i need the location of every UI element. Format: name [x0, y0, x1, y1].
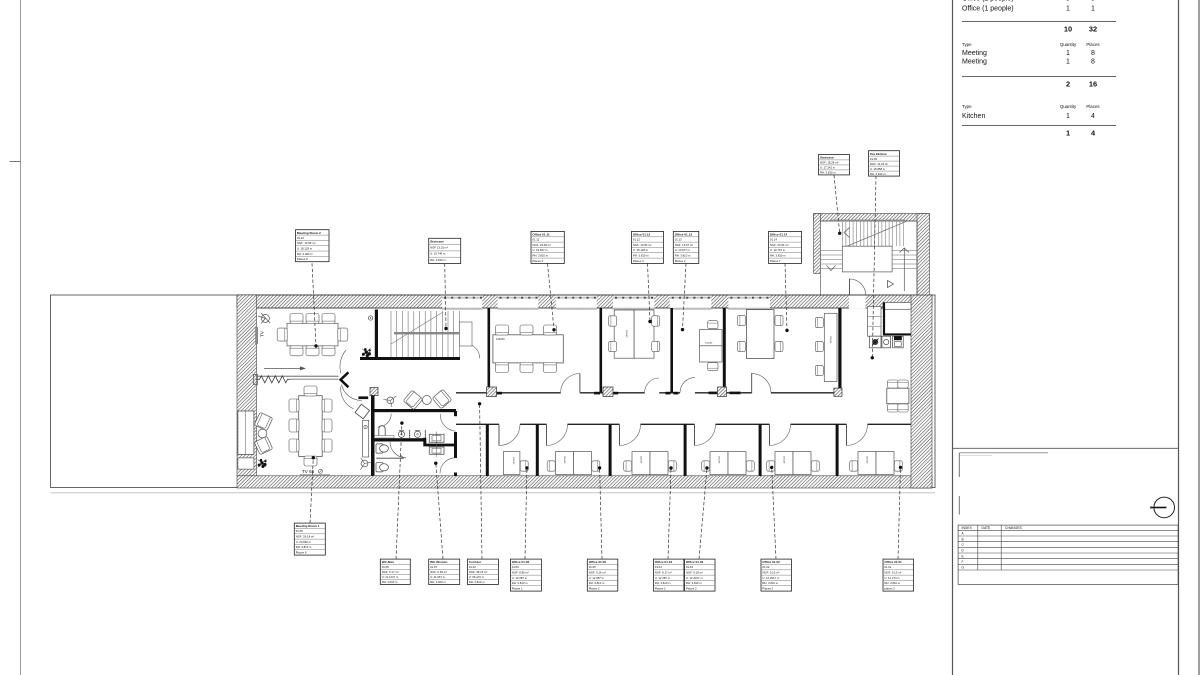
svg-text:1: 1	[1091, 6, 1095, 13]
svg-text:Type: Type	[962, 42, 972, 47]
svg-text:NGF: 13.67 m²: NGF: 13.67 m²	[675, 243, 694, 247]
svg-text:RH: 3.810 m: RH: 3.810 m	[884, 581, 900, 585]
svg-text:Places 7: Places 7	[770, 259, 781, 263]
svg-text:Office 01.05: Office 01.05	[589, 560, 607, 564]
svg-text:Places 2: Places 2	[762, 586, 773, 590]
svg-text:01.05: 01.05	[589, 565, 596, 569]
svg-text:Office (1 people): Office (1 people)	[962, 6, 1014, 13]
svg-text:Kitchen: Kitchen	[962, 113, 985, 120]
svg-text:WC-Women: WC-Women	[430, 560, 447, 564]
svg-text:9: 9	[1066, 0, 1070, 3]
svg-text:B: B	[962, 537, 964, 541]
svg-text:Meeting Room 1: Meeting Room 1	[296, 524, 320, 528]
svg-text:U: 12.2017 m: U: 12.2017 m	[686, 576, 703, 580]
svg-text:8: 8	[1091, 50, 1095, 57]
svg-text:RH: 3.810 m: RH: 3.810 m	[655, 581, 671, 585]
svg-text:Office 01.02: Office 01.02	[762, 560, 780, 564]
svg-text:Type: Type	[962, 104, 972, 109]
svg-text:01.06: 01.06	[512, 565, 519, 569]
svg-text:NGF: 13.80 m²: NGF: 13.80 m²	[633, 243, 652, 247]
svg-text:U: 19.537 m: U: 19.537 m	[532, 248, 548, 252]
svg-text:WC-Men: WC-Men	[382, 560, 394, 564]
svg-text:RH: 3.810 m: RH: 3.810 m	[633, 253, 649, 257]
svg-text:8: 8	[1091, 59, 1095, 66]
svg-text:1: 1	[1066, 113, 1070, 120]
svg-text:9: 9	[1091, 0, 1095, 3]
svg-text:Quantity: Quantity	[1060, 104, 1077, 109]
svg-text:E: E	[962, 554, 964, 558]
svg-text:Corridor: Corridor	[469, 560, 482, 564]
svg-text:01.10: 01.10	[297, 236, 304, 240]
svg-text:U: 13.977 m: U: 13.977 m	[675, 248, 691, 252]
svg-text:1: 1	[1066, 129, 1070, 138]
svg-text:RH: 3.810 m: RH: 3.810 m	[762, 581, 778, 585]
svg-text:01.14: 01.14	[770, 238, 777, 242]
svg-text:NGF 13.15 m²: NGF 13.15 m²	[430, 245, 448, 249]
svg-text:Places 2: Places 2	[675, 259, 686, 263]
svg-text:160x80: 160x80	[563, 456, 565, 464]
svg-text:NGF: 6.60 m²: NGF: 6.60 m²	[430, 570, 447, 574]
svg-text:NGF: 11.23 m²: NGF: 11.23 m²	[870, 162, 888, 166]
svg-text:10: 10	[1064, 25, 1072, 34]
svg-text:U: 12.2917 m: U: 12.2917 m	[762, 576, 779, 580]
svg-text:1: 1	[1066, 50, 1070, 57]
svg-text:NGF: 9.13 m²: NGF: 9.13 m²	[884, 571, 901, 575]
svg-text:160x80: 160x80	[512, 457, 514, 465]
svg-text:160x80: 160x80	[625, 330, 627, 338]
svg-text:140x60: 140x60	[496, 337, 505, 341]
svg-text:1: 1	[1066, 6, 1070, 13]
svg-text:U: 12.087 m: U: 12.087 m	[512, 576, 528, 580]
svg-text:U: 12.274 m: U: 12.274 m	[884, 576, 900, 580]
svg-text:U: 19.797 m: U: 19.797 m	[770, 248, 786, 252]
svg-text:F: F	[962, 560, 964, 564]
svg-text:01.12: 01.12	[633, 238, 640, 242]
svg-text:NGF: 19.08 m²: NGF: 19.08 m²	[297, 241, 316, 245]
svg-text:1: 1	[1066, 59, 1070, 66]
svg-text:Places 2: Places 2	[655, 586, 666, 590]
svg-text:RH: 3.810 m: RH: 3.810 m	[686, 581, 702, 585]
svg-text:U: 66.472 m: U: 66.472 m	[469, 575, 485, 579]
svg-text:NGF: 18.26 m²: NGF: 18.26 m²	[820, 161, 839, 165]
svg-text:RH: 3.810 m: RH: 3.810 m	[870, 172, 886, 176]
svg-text:RH: 3.810 m: RH: 3.810 m	[675, 253, 691, 257]
svg-text:NGF: 48.15 m²: NGF: 48.15 m²	[469, 570, 488, 574]
svg-text:Meeting: Meeting	[962, 59, 987, 66]
svg-text:Office 01.03: Office 01.03	[686, 560, 704, 564]
svg-text:NGF: 5.17 m²: NGF: 5.17 m²	[382, 570, 399, 574]
svg-text:RH: 3.810 m: RH: 3.810 m	[770, 253, 786, 257]
svg-text:NGF: 23.09 m²: NGF: 23.09 m²	[532, 243, 551, 247]
svg-text:RH: 3.810 m: RH: 3.810 m	[589, 581, 605, 585]
svg-text:2: 2	[1066, 80, 1070, 89]
svg-text:Office 01.13: Office 01.13	[675, 233, 693, 237]
svg-text:Places 1: Places 1	[512, 586, 523, 590]
svg-text:U: 18.129 m: U: 18.129 m	[297, 246, 313, 250]
svg-text:U: 11.1247 m: U: 11.1247 m	[382, 575, 399, 579]
svg-text:01.20: 01.20	[469, 565, 476, 569]
svg-text:32: 32	[1089, 25, 1097, 34]
svg-text:NGF: 9.18 m²: NGF: 9.18 m²	[686, 571, 703, 575]
svg-text:160x80: 160x80	[783, 456, 785, 464]
svg-text:RH: 3.000 m: RH: 3.000 m	[382, 580, 398, 584]
svg-text:Places 2: Places 2	[686, 586, 697, 590]
svg-text:01.01: 01.01	[884, 565, 891, 569]
svg-text:Places 4: Places 4	[633, 259, 644, 263]
svg-text:Office 01.06: Office 01.06	[512, 560, 530, 564]
svg-text:Office 01.04: Office 01.04	[655, 560, 673, 564]
svg-text:places 2: places 2	[884, 586, 895, 590]
svg-text:U: 16.858 m: U: 16.858 m	[870, 167, 886, 171]
svg-text:01.09: 01.09	[870, 157, 877, 161]
svg-text:01.04: 01.04	[655, 565, 662, 569]
svg-text:CHANGES: CHANGES	[1005, 526, 1023, 530]
svg-text:U: 20.962 m: U: 20.962 m	[296, 540, 312, 544]
svg-text:Quantity: Quantity	[1060, 42, 1077, 47]
svg-text:NGF: 26.18 m²: NGF: 26.18 m²	[296, 535, 315, 539]
svg-text:Office 01.11: Office 01.11	[532, 233, 549, 237]
svg-text:NGF: 9.17 m²: NGF: 9.17 m²	[655, 571, 672, 575]
svg-text:Places 2: Places 2	[589, 586, 600, 590]
svg-text:NGF: 9.16 m²: NGF: 9.16 m²	[589, 571, 606, 575]
svg-text:U: 12.287 m: U: 12.287 m	[655, 576, 671, 580]
svg-text:RH: 3.810 m: RH: 3.810 m	[532, 253, 548, 257]
svg-text:Places 4: Places 4	[532, 259, 543, 263]
svg-text:Meeting: Meeting	[962, 50, 987, 57]
svg-text:Places: Places	[1086, 42, 1100, 47]
svg-text:NGF: 9.15 m²: NGF: 9.15 m²	[762, 571, 779, 575]
svg-text:RH: 3.000 m: RH: 3.000 m	[430, 580, 446, 584]
svg-text:01.03: 01.03	[686, 565, 693, 569]
svg-text:U: 15.746 m: U: 15.746 m	[430, 252, 446, 256]
svg-text:RH: 3.810 m: RH: 3.810 m	[296, 545, 312, 549]
svg-text:Office 01.12: Office 01.12	[633, 233, 651, 237]
svg-text:Meeting Room 2: Meeting Room 2	[297, 231, 321, 235]
svg-text:Staircase: Staircase	[430, 239, 444, 243]
svg-text:Places 8: Places 8	[297, 257, 308, 261]
svg-text:Places 8: Places 8	[296, 550, 307, 554]
svg-text:DATE: DATE	[982, 526, 992, 530]
svg-text:INDEX: INDEX	[962, 526, 973, 530]
svg-text:Office (2 people): Office (2 people)	[962, 0, 1014, 3]
svg-text:160x80: 160x80	[866, 456, 868, 464]
svg-text:01.07: 01.07	[430, 565, 437, 569]
svg-text:RH: 3.810 m: RH: 3.810 m	[430, 258, 446, 262]
svg-text:RH: 3.810 m: RH: 3.810 m	[512, 581, 528, 585]
svg-text:16: 16	[1089, 80, 1097, 89]
svg-text:01.13: 01.13	[675, 238, 682, 242]
svg-text:01.11: 01.11	[532, 238, 539, 242]
svg-text:U: 12.387 m: U: 12.387 m	[589, 576, 605, 580]
svg-text:Tea kitchen: Tea kitchen	[870, 152, 887, 156]
svg-text:160x80: 160x80	[640, 456, 642, 464]
svg-text:Office 01.01: Office 01.01	[884, 560, 902, 564]
svg-text:U: 11.667 m: U: 11.667 m	[430, 575, 446, 579]
svg-text:Office 01.14: Office 01.14	[770, 233, 788, 237]
svg-text:RH: 3.810 m: RH: 3.810 m	[820, 171, 836, 175]
svg-text:150x80: 150x80	[705, 343, 713, 345]
svg-text:NGF: 23.90 m²: NGF: 23.90 m²	[770, 243, 789, 247]
svg-text:RH: 3.810 m: RH: 3.810 m	[469, 580, 485, 584]
svg-text:Staircase: Staircase	[820, 156, 834, 160]
svg-text:U: 15.128 m: U: 15.128 m	[633, 248, 649, 252]
svg-text:Places: Places	[1086, 104, 1100, 109]
svg-text:U: 17.242 m: U: 17.242 m	[820, 166, 836, 170]
svg-text:4: 4	[1091, 113, 1095, 120]
svg-text:160x80: 160x80	[718, 456, 720, 464]
svg-text:01.08: 01.08	[382, 565, 389, 569]
svg-text:01.05: 01.05	[296, 529, 303, 533]
svg-text:TV: TV	[260, 330, 265, 337]
svg-text:160x80: 160x80	[829, 336, 831, 344]
svg-text:NGF: 8.86 m²: NGF: 8.86 m²	[512, 571, 529, 575]
svg-text:01.02: 01.02	[762, 565, 769, 569]
svg-text:RH: 3.000 m: RH: 3.000 m	[297, 252, 313, 256]
